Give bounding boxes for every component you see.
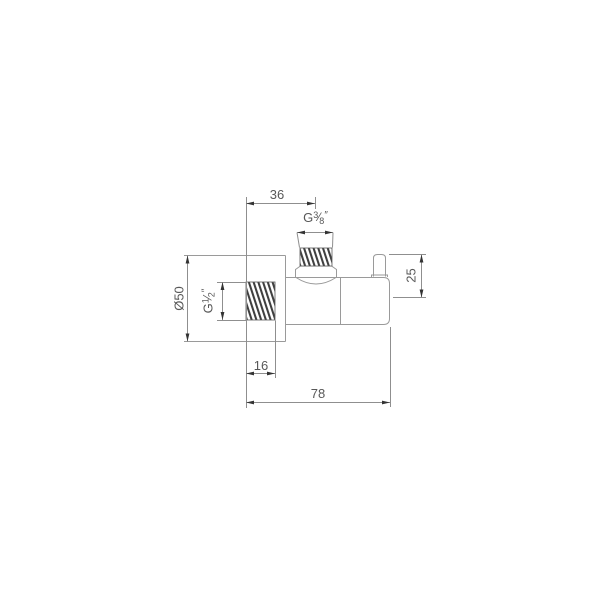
outlet-thread-label: G3⁄8″ [292,210,338,227]
arrow-36-right [307,202,315,206]
inlet-thread-numerator: 1 [201,298,211,303]
arrow-36-left [246,202,254,206]
arrow-50-top [186,256,190,264]
arrow-g38-left [297,231,305,235]
inlet-thread-prefix: G [201,303,216,313]
ext-g38-left [297,233,300,248]
technical-drawing-canvas: 36 G3⁄8″ Ø50 G1⁄2″ 16 78 25 [0,0,600,600]
outlet-thread-hatch [300,248,332,266]
arrow-78-right [382,401,390,405]
handle-outline [374,255,386,277]
inlet-thread-label: G1⁄2″ [201,279,218,325]
inch-mark: ″ [201,290,212,293]
arrow-78-left [246,401,254,405]
inlet-thread-denominator: 2 [207,292,217,297]
inlet-thread-hatch [246,282,275,320]
arrow-25-bottom [420,290,424,298]
dim-25-label: 25 [404,256,419,296]
arrow-50-bottom [186,334,190,342]
valve-body-outline [286,278,390,325]
dim-flange-diameter-label: Ø50 [172,276,187,322]
inch-mark: ″ [324,210,327,221]
dim-78-label: 78 [298,386,338,401]
arrow-g38-right [325,231,333,235]
dim-36-label: 36 [257,187,297,202]
arrowheads [186,202,424,405]
arrow-g12-bottom [221,312,225,320]
arrow-g12-top [221,282,225,290]
dome-arc [296,278,336,285]
ext-g38-right [333,233,334,248]
angle-valve-drawing [0,0,600,600]
dim-16-label: 16 [241,358,281,373]
outlet-thread-prefix: G [303,210,313,225]
outlet-collar-outline [296,266,337,277]
arrow-25-top [420,255,424,263]
